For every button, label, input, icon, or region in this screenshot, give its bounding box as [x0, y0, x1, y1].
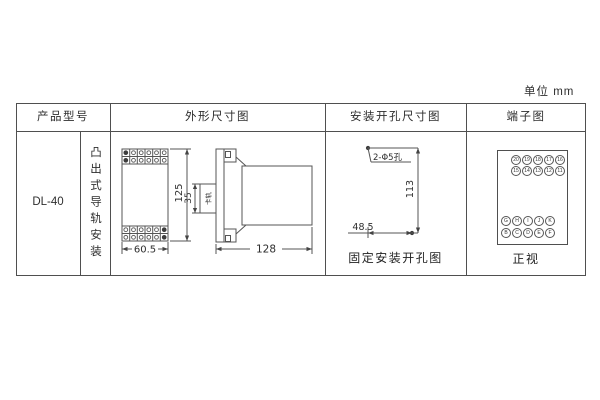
terminal-diagram-caption: 正视: [466, 250, 586, 267]
hole-note-leader: 2-Φ5孔: [368, 148, 411, 163]
header-product-model: 产品型号: [16, 103, 110, 131]
header-hole-drawing: 安装开孔尺寸图: [325, 103, 466, 131]
terminal-diagram-box: 20 19 18 17 16 15 14 13 12 11 G H I J K …: [497, 150, 568, 245]
terminal-circle: H: [512, 216, 522, 226]
terminal-circle: K: [545, 216, 555, 226]
terminal-circle: 11: [555, 166, 565, 176]
terminal-circle: 12: [544, 166, 554, 176]
header-terminal-diagram: 端子图: [466, 103, 586, 131]
terminal-circle: B: [501, 228, 511, 238]
terminal-circle: E: [534, 228, 544, 238]
unit-label: 单位 mm: [524, 83, 574, 99]
model-cell-divider: [80, 131, 81, 276]
hole-note-text: 2-Φ5孔: [373, 153, 403, 163]
dim-width-60-5: 60.5: [122, 242, 168, 256]
terminal-circle: G: [501, 216, 511, 226]
dim-text-60-5: 60.5: [134, 245, 156, 256]
dim-text-48-5: 48.5: [352, 222, 373, 233]
terminal-circle: J: [534, 216, 544, 226]
terminal-circle: 16: [555, 155, 565, 165]
terminal-circle: 14: [522, 166, 532, 176]
terminal-circle: F: [545, 228, 555, 238]
outline-drawing-svg: 60.5 125 卡轨 35 128: [110, 131, 325, 276]
terminal-circle: 19: [522, 155, 532, 165]
terminal-circle: 20: [511, 155, 521, 165]
dim-text-35: 35: [184, 192, 194, 203]
header-outline-drawing: 外形尺寸图: [110, 103, 325, 131]
dim-text-128: 128: [256, 244, 276, 256]
product-model-value: DL-40: [16, 196, 80, 208]
terminal-circle: 17: [544, 155, 554, 165]
din-rail-block: 卡轨: [200, 184, 216, 213]
terminal-circle: D: [523, 228, 533, 238]
hole-drawing-caption: 固定安装开孔图: [325, 249, 466, 266]
terminal-circle: 15: [511, 166, 521, 176]
side-view: [216, 149, 312, 242]
terminal-circle: C: [512, 228, 522, 238]
front-view: [122, 149, 168, 241]
mounting-type-label: 凸出式导轨安装: [87, 146, 103, 271]
rail-label-text: 卡轨: [204, 192, 213, 206]
terminal-circle: 18: [533, 155, 543, 165]
dim-text-113: 113: [405, 180, 416, 198]
terminal-circle: 13: [533, 166, 543, 176]
dim-rail-35: 35: [184, 184, 200, 213]
terminal-circle: I: [523, 216, 533, 226]
